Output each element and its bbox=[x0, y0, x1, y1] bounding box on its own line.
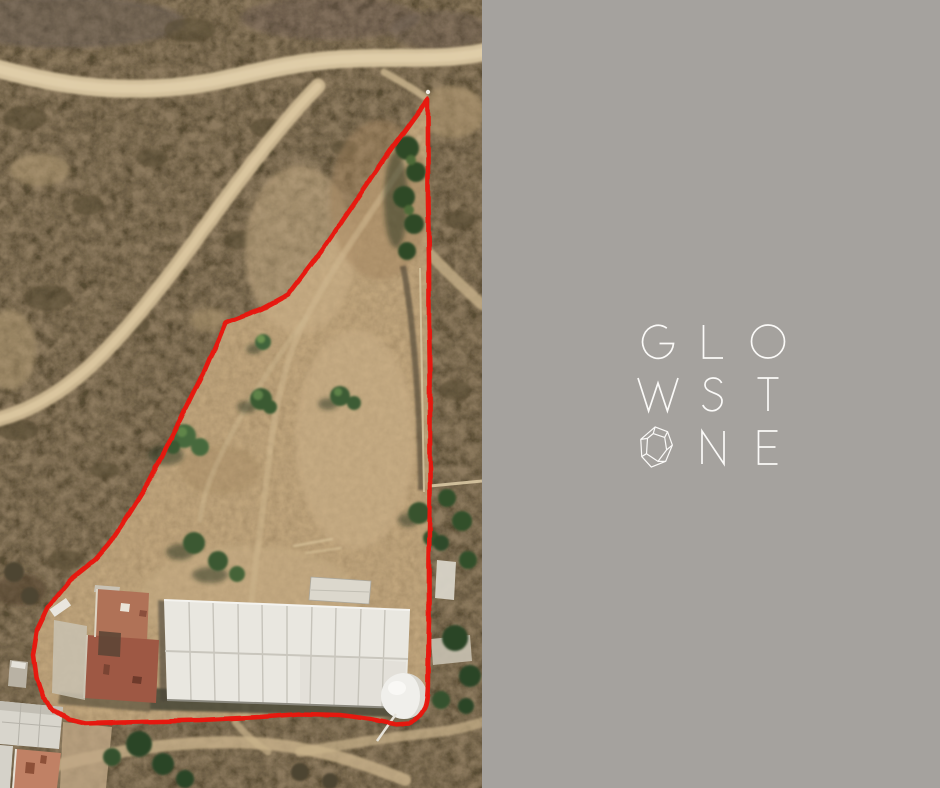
logo-letter-S bbox=[685, 367, 740, 420]
stone-icon bbox=[636, 425, 680, 469]
logo-row-1 bbox=[630, 314, 795, 367]
logo-letter-T bbox=[746, 372, 790, 416]
logo-letter-G bbox=[636, 319, 680, 363]
logo-letter-T bbox=[740, 367, 795, 420]
stone-icon bbox=[630, 420, 685, 473]
logo-row-3 bbox=[630, 420, 795, 473]
page: GLOWSTONE bbox=[0, 0, 940, 788]
logo-letter-E bbox=[746, 425, 790, 469]
satellite-image bbox=[0, 0, 482, 788]
logo-letter-N bbox=[685, 420, 740, 473]
logo-letter-S bbox=[691, 372, 735, 416]
logo-row-2 bbox=[630, 367, 795, 420]
logo-letter-W bbox=[630, 367, 685, 420]
logo-letter-L bbox=[685, 314, 740, 367]
logo-letter-N bbox=[691, 425, 735, 469]
brand-logo bbox=[630, 314, 795, 473]
logo-letter-O bbox=[740, 314, 795, 367]
logo-letter-G bbox=[630, 314, 685, 367]
logo-letter-L bbox=[691, 319, 735, 363]
logo-letter-O bbox=[746, 319, 790, 363]
brand-panel: GLOWSTONE bbox=[482, 0, 940, 788]
apex-marker bbox=[426, 90, 430, 94]
logo-letter-E bbox=[740, 420, 795, 473]
logo-letter-W bbox=[636, 372, 680, 416]
aerial-scene bbox=[0, 0, 482, 788]
brand-name-text: GLOWSTONE bbox=[482, 0, 483, 1]
